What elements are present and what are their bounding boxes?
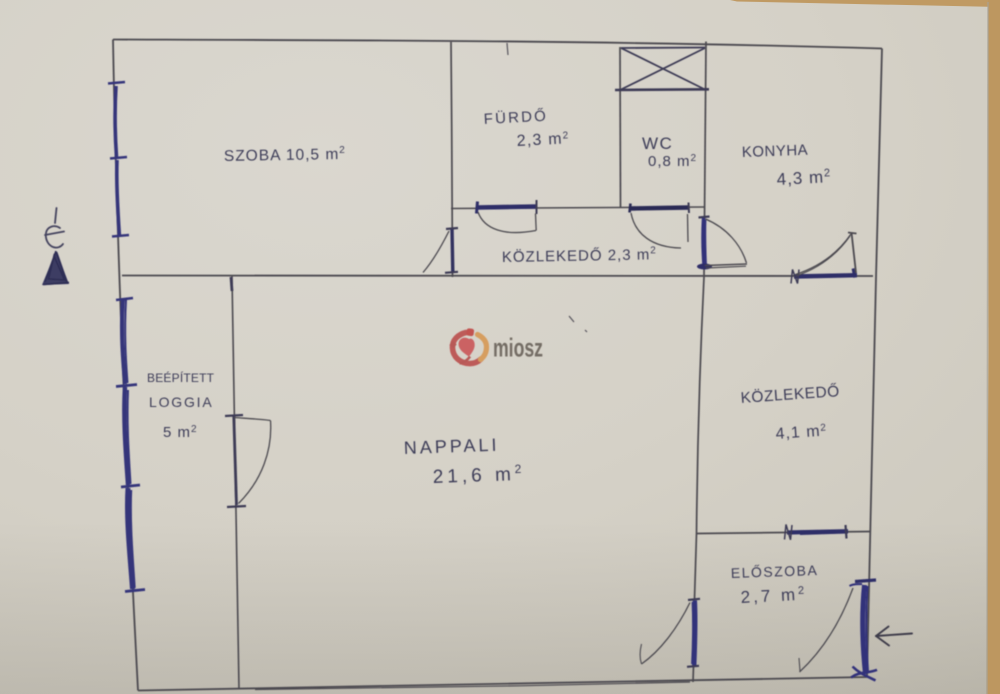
svg-text:WC: WC <box>642 134 673 153</box>
svg-text:LOGGIA: LOGGIA <box>149 394 213 410</box>
svg-text:ELŐSZOBA: ELŐSZOBA <box>731 562 819 581</box>
svg-text:FÜRDŐ: FÜRDŐ <box>483 107 548 128</box>
svg-text:2,3 m2: 2,3 m2 <box>516 130 570 150</box>
svg-text:KONYHA: KONYHA <box>742 142 809 161</box>
svg-text:KÖZLEKEDŐ 2,3 m2: KÖZLEKEDŐ 2,3 m2 <box>502 245 657 266</box>
svg-text:SZOBA 10,5 m2: SZOBA 10,5 m2 <box>224 145 346 165</box>
svg-text:21,6 m2: 21,6 m2 <box>432 462 526 488</box>
svg-text:0,8 m2: 0,8 m2 <box>648 153 697 170</box>
svg-text:4,3 m2: 4,3 m2 <box>776 167 832 189</box>
svg-text:BEÉPÍTETT: BEÉPÍTETT <box>147 370 215 385</box>
svg-text:4,1 m2: 4,1 m2 <box>775 422 828 443</box>
svg-text:miosz: miosz <box>493 333 543 363</box>
svg-text:2,7 m2: 2,7 m2 <box>740 585 808 607</box>
svg-text:NAPPALI: NAPPALI <box>403 435 499 458</box>
